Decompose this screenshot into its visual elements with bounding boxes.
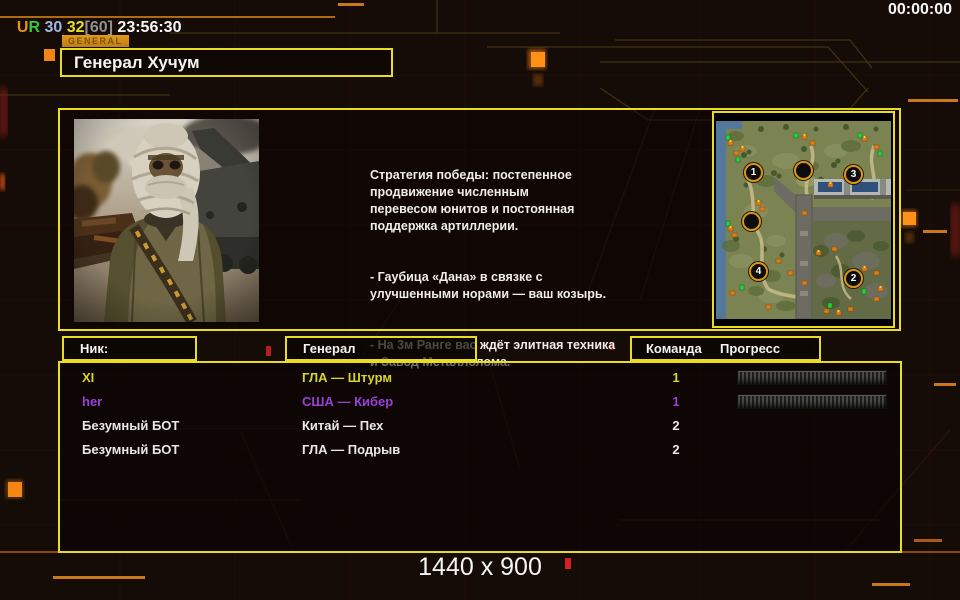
stat-segment: [60] [85,19,113,36]
header-team-progress: Команда Прогресс [630,336,821,361]
player-progress-bar [738,371,886,384]
player-progress-bar [738,395,886,408]
header-general-label: Генерал [303,338,355,359]
player-nick: XI [82,366,94,390]
resolution-label: 1440 x 900 [0,553,960,582]
map-start-position: 2 [844,269,863,288]
page-title: Генерал Хучум [60,48,393,77]
strategy-paragraph: Стратегия победы: постепенное продвижени… [370,167,700,235]
stat-segment: 30 [40,19,62,36]
player-nick: her [82,390,102,414]
map-start-position [794,161,813,180]
player-team: 1 [666,366,686,390]
player-table: XI ГЛА — Штурм 1 her США — Кибер 1 Безум… [58,361,902,553]
map-start-position: 4 [749,262,768,281]
player-general: ГЛА — Подрыв [302,438,400,462]
player-general: Китай — Пех [302,414,383,438]
table-row: XI ГЛА — Штурм 1 [60,366,900,390]
header-nick: Ник: [62,336,197,361]
header-team-label: Команда [646,338,702,359]
stat-segment: R [28,19,40,36]
header-general: Генерал [285,336,477,361]
map-start-position: 3 [844,165,863,184]
player-general: ГЛА — Штурм [302,366,392,390]
player-nick: Безумный БОТ [82,438,179,462]
header-nick-label: Ник: [80,338,108,359]
player-nick: Безумный БОТ [82,414,179,438]
map-start-position: 1 [744,163,763,182]
map-start-position [742,212,761,231]
minimap-panel: 1 3 4 2 [712,111,895,328]
game-timer: 00:00:00 [888,1,952,19]
stat-segment: U [17,19,29,36]
stat-segment: 23:56:30 [113,19,182,36]
general-portrait-image [74,119,259,322]
minimap: 1 3 4 2 [716,121,891,319]
general-portrait [74,119,259,322]
table-row: her США — Кибер 1 [60,390,900,414]
general-tab-label: GENERAL [62,35,129,47]
strategy-paragraph: - Гаубица «Дана» в связке с улучшенными … [370,269,700,303]
player-team: 2 [666,414,686,438]
table-row: Безумный БОТ ГЛА — Подрыв 2 [60,438,900,462]
debug-stats: UR 30 32[60] 23:56:30 [8,1,181,37]
player-general: США — Кибер [302,390,393,414]
player-team: 1 [666,390,686,414]
header-progress-label: Прогресс [720,338,780,359]
table-row: Безумный БОТ Китай — Пех 2 [60,414,900,438]
player-team: 2 [666,438,686,462]
stat-segment: 32 [62,19,84,36]
